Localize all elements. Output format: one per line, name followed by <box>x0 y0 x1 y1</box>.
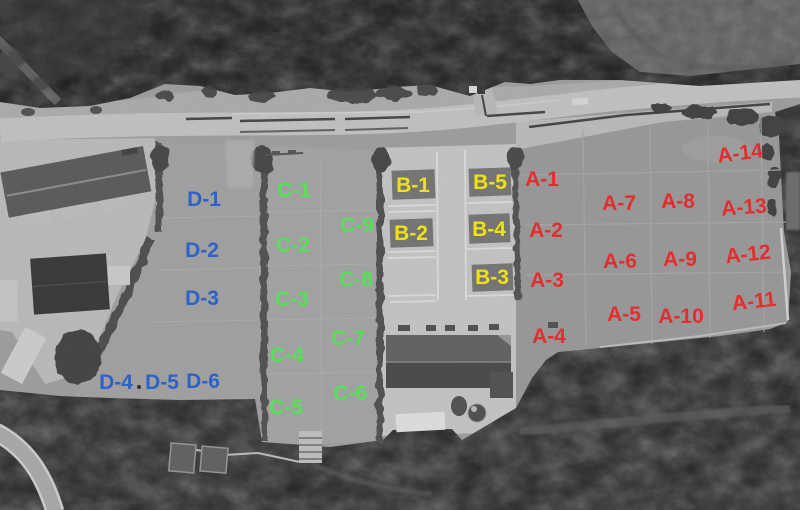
svg-text:A-13: A-13 <box>721 194 768 220</box>
svg-text:A-5: A-5 <box>607 303 641 326</box>
svg-text:A-2: A-2 <box>529 219 563 242</box>
svg-text:A-12: A-12 <box>724 241 772 269</box>
svg-text:D-3: D-3 <box>185 287 219 310</box>
svg-text:A-7: A-7 <box>602 192 636 215</box>
svg-text:A-4: A-4 <box>532 325 566 348</box>
svg-text:B-3: B-3 <box>475 266 509 289</box>
svg-text:B-5: B-5 <box>473 171 507 194</box>
svg-text:A-10: A-10 <box>658 305 704 328</box>
svg-text:A-8: A-8 <box>661 190 695 213</box>
svg-text:D-4: D-4 <box>99 371 133 394</box>
svg-text:C-1: C-1 <box>277 179 311 202</box>
svg-text:A-6: A-6 <box>603 250 637 273</box>
svg-text:B-1: B-1 <box>396 174 430 197</box>
svg-text:C-9: C-9 <box>340 214 374 237</box>
svg-text:D-2: D-2 <box>185 239 219 262</box>
svg-text:C-4: C-4 <box>270 344 304 367</box>
svg-text:A-3: A-3 <box>530 269 564 292</box>
svg-text:B-4: B-4 <box>472 218 506 241</box>
svg-text:A-11: A-11 <box>731 288 778 316</box>
svg-text:A-9: A-9 <box>663 248 697 271</box>
svg-text:C-6: C-6 <box>333 382 367 405</box>
svg-text:A-1: A-1 <box>525 168 559 191</box>
svg-text:C-7: C-7 <box>331 327 365 350</box>
svg-text:D-1: D-1 <box>187 188 221 211</box>
svg-text:C-8: C-8 <box>339 268 373 291</box>
svg-text:C-5: C-5 <box>269 396 303 419</box>
svg-text:D-5: D-5 <box>145 371 179 394</box>
svg-text:D-6: D-6 <box>186 370 220 393</box>
svg-text:B-2: B-2 <box>394 222 428 245</box>
svg-text:C-3: C-3 <box>275 288 309 311</box>
svg-text:C-2: C-2 <box>276 234 310 257</box>
